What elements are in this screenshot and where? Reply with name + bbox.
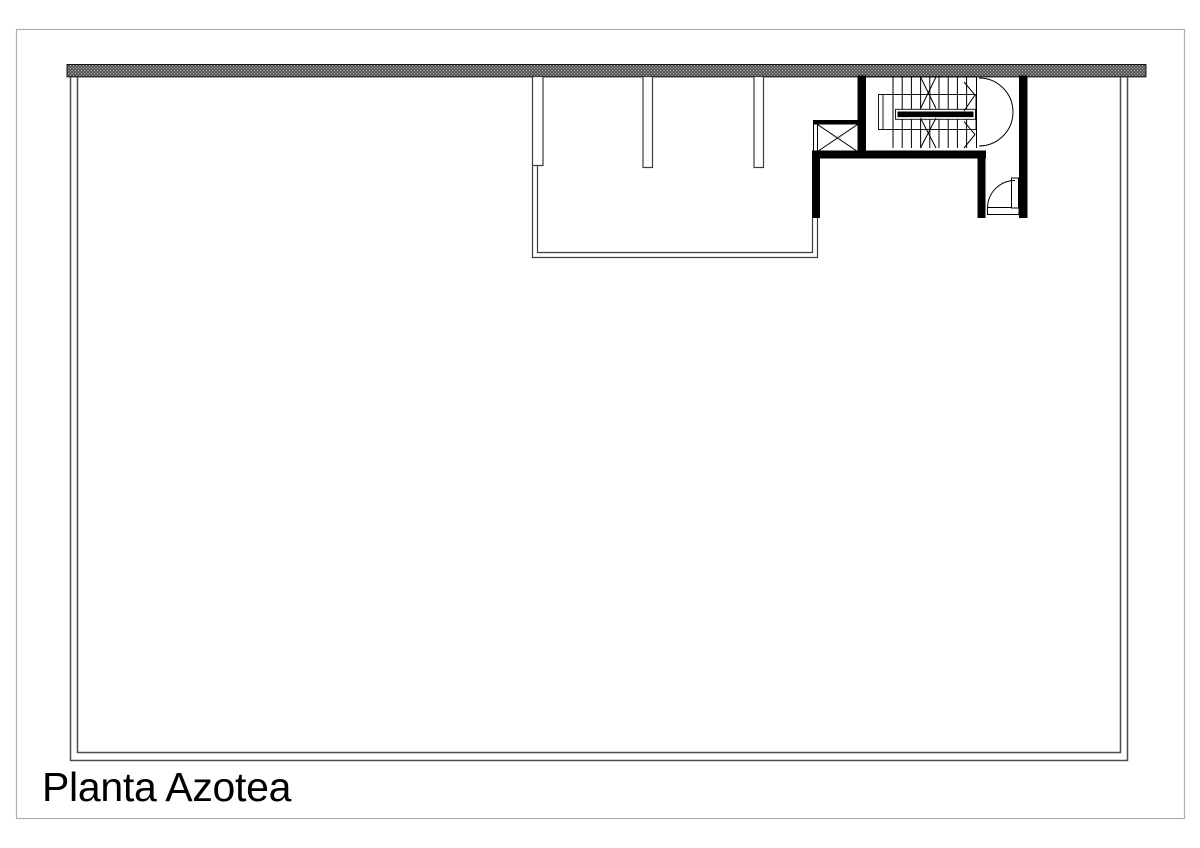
roof-perimeter-inner <box>78 77 1121 753</box>
skylight-enclosure <box>533 77 818 258</box>
enclosure-wall-outer <box>533 166 818 258</box>
shaft-top-wall <box>813 120 858 125</box>
drawing-sheet: Planta Azotea <box>0 0 1200 848</box>
stair-rail-core <box>898 112 974 118</box>
enclosure-wall-inner <box>538 166 813 253</box>
sheet-frame <box>17 30 1185 819</box>
plan-linework <box>67 65 1146 761</box>
door-swing-arc <box>987 181 1015 209</box>
roof-perimeter <box>71 77 1128 761</box>
pier-fin <box>533 77 544 166</box>
pier-fin <box>643 77 653 168</box>
door-leaf <box>1012 178 1019 208</box>
stair-door-swing-arc <box>979 78 1013 146</box>
door-sill <box>988 208 1020 215</box>
plan-title: Planta Azotea <box>42 766 291 809</box>
floor-plan-svg <box>0 0 1200 848</box>
roof-perimeter-outer <box>71 77 1128 761</box>
wall-segment <box>812 151 986 159</box>
core-walls <box>812 76 1028 219</box>
break-chevron <box>964 82 975 111</box>
elevator-shaft <box>814 121 858 153</box>
wall-segment <box>858 76 867 159</box>
pier-fin <box>754 77 764 168</box>
wall-segment <box>1019 76 1028 219</box>
stairs <box>866 77 1013 148</box>
facade-wall-hatched <box>67 65 1146 77</box>
wall-segment <box>978 158 986 218</box>
break-chevron <box>964 122 975 149</box>
service-door <box>987 178 1019 215</box>
wall-segment <box>812 158 820 219</box>
